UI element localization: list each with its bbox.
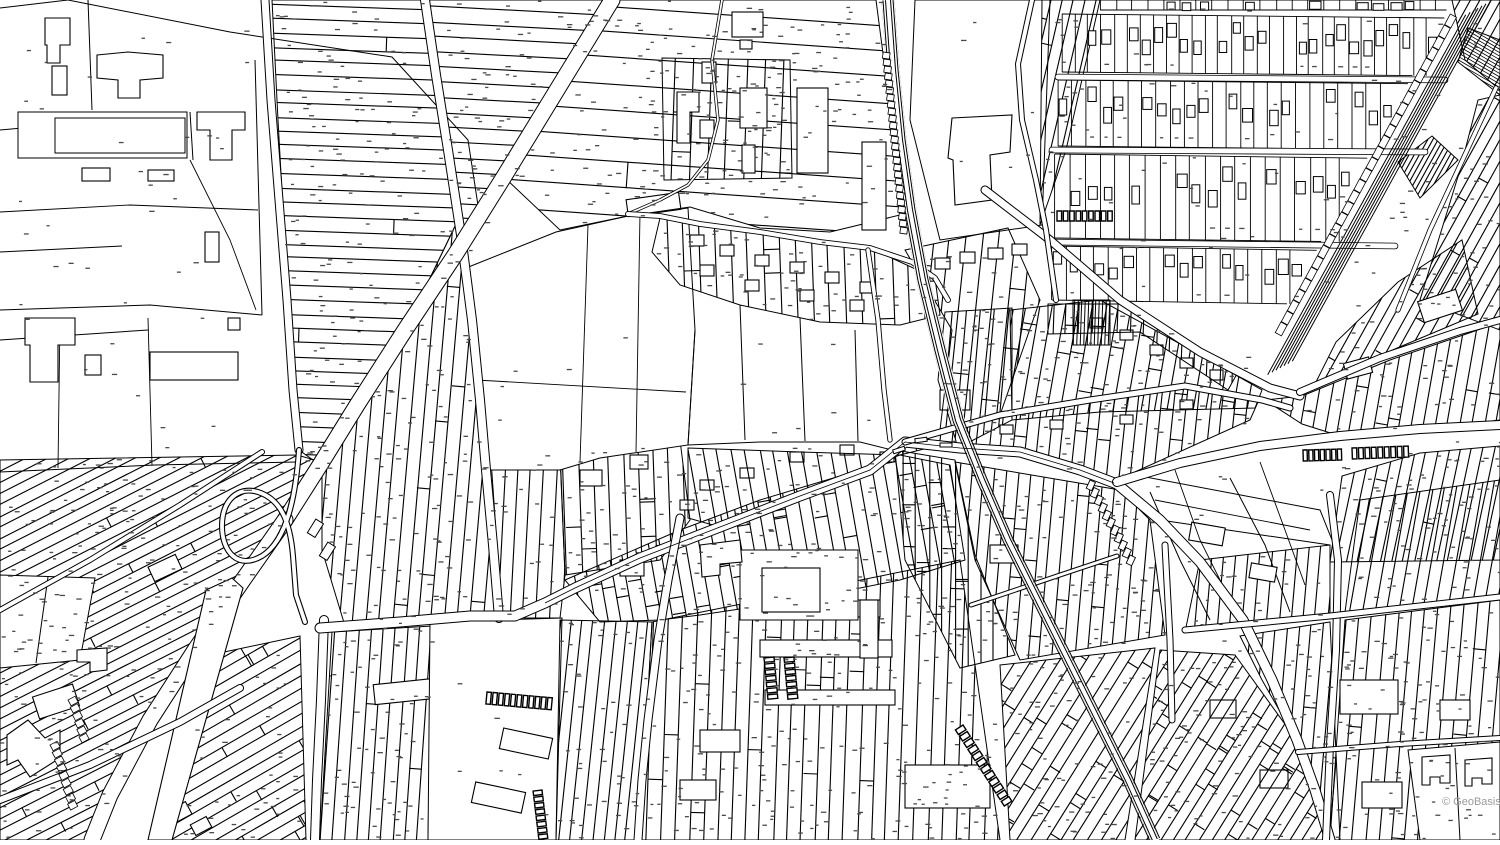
svg-text:© GeoBasis: © GeoBasis	[1442, 796, 1500, 808]
